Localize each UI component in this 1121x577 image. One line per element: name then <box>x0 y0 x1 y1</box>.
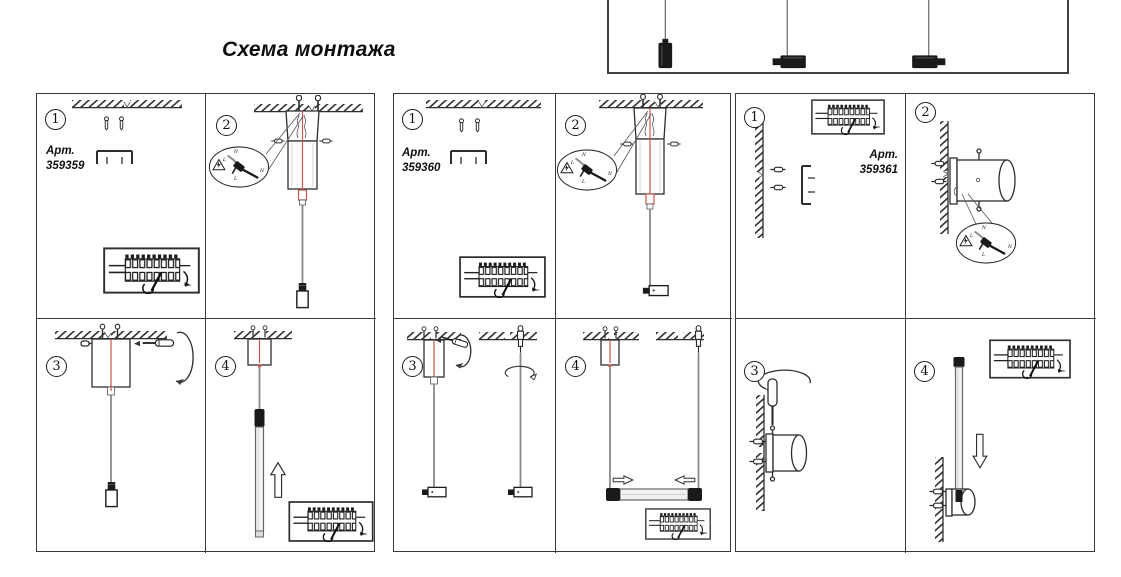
pendant-spot-right-nub <box>912 0 945 68</box>
panel3-step4-cell: 4 макс. <box>906 319 1096 553</box>
canopy <box>601 340 619 368</box>
step-number-badge: 4 <box>914 361 935 382</box>
spot-lamp <box>422 487 446 496</box>
right-arrow-icon <box>613 476 633 484</box>
cable-gripper <box>518 326 524 353</box>
small-screw-bottom <box>771 472 775 481</box>
step-number-badge: 1 <box>45 109 66 130</box>
panel2-step3-cell: 3 <box>394 319 556 553</box>
ceiling-hatch <box>72 100 182 108</box>
wall-fixture <box>946 489 975 516</box>
ceiling-hatch-right <box>479 332 537 340</box>
panel2-step1-cell: 1 Арт. 359360 <box>394 94 556 319</box>
panel3-step1-cell: 1 Арт. 359361 <box>736 94 906 319</box>
step-number-badge: 2 <box>915 102 936 123</box>
pendant-preview-drawing <box>609 0 1067 72</box>
panel3-step3-cell: 3 <box>736 319 906 553</box>
article-number: Арт. 359361 <box>828 148 898 178</box>
step-number-badge: 1 <box>744 107 765 128</box>
rotation-arrow <box>758 370 810 394</box>
lamp-socket <box>297 283 308 308</box>
pendant-spot-left-nub <box>773 0 806 68</box>
step-number-badge: 2 <box>565 115 586 136</box>
wall-hatch <box>756 395 764 511</box>
wall-fixture <box>950 158 1015 204</box>
spot-lamp <box>508 487 532 496</box>
lamp-socket <box>106 482 117 507</box>
step-number-badge: 3 <box>402 356 423 377</box>
svg-text:макс.: макс. <box>1058 369 1066 373</box>
step-number-badge: 3 <box>744 361 765 382</box>
panel3-step2-cell: 2 <box>906 94 1096 319</box>
svg-text:L: L <box>222 157 226 163</box>
dowel-screw-icon <box>770 185 785 189</box>
svg-text:макс.: макс. <box>873 125 881 129</box>
svg-text:L: L <box>969 233 973 239</box>
ceiling-hatch <box>426 100 541 108</box>
svg-text:макс.: макс. <box>184 283 192 287</box>
panel1-step3-cell: 3 <box>37 319 206 553</box>
ceiling-hatch <box>55 331 167 339</box>
dowel-screw-icon <box>459 119 463 132</box>
article-number: Арт. 359360 <box>402 146 440 176</box>
side-screw-left <box>81 341 92 346</box>
small-screw-top <box>977 149 981 160</box>
ceiling-hatch <box>234 331 292 339</box>
canopy <box>248 339 271 368</box>
dowel-screw-icon <box>104 117 108 130</box>
step-number-badge: 4 <box>215 356 236 377</box>
panel-359360: 1 Арт. 359360 <box>393 93 731 552</box>
svg-text:L: L <box>233 176 237 182</box>
ceiling-hatch-left <box>407 332 461 340</box>
step-number-badge: 4 <box>565 356 586 377</box>
panel1-step2-cell: 2 <box>206 94 376 319</box>
terminal-block-inset: макс. <box>990 340 1070 378</box>
left-arrow-icon <box>675 476 695 484</box>
screwdriver-vertical <box>768 379 777 425</box>
tube-lamp-vertical <box>954 357 965 501</box>
dowel-screw-icon <box>770 167 785 171</box>
product-preview-box <box>607 0 1069 74</box>
article-number: Арт. 359359 <box>46 144 84 174</box>
up-arrow-icon <box>271 463 285 498</box>
tube-lamp-horizontal <box>606 488 702 501</box>
pendant-lamp-vertical <box>658 0 672 68</box>
svg-text:макс.: макс. <box>360 532 368 536</box>
down-arrow-icon <box>973 434 987 467</box>
step-number-badge: 1 <box>402 109 423 130</box>
page-title: Схема монтажа <box>222 38 396 62</box>
svg-text:L: L <box>581 179 585 185</box>
canopy <box>92 339 130 387</box>
screwdriver-with-rotation <box>134 332 193 385</box>
panel1-step4-cell: 4 <box>206 319 376 553</box>
cable-gripper <box>696 326 702 353</box>
mounting-bracket <box>451 151 486 164</box>
terminal-block-inset: макс. <box>460 257 545 297</box>
terminal-block-inset: макс. <box>289 502 372 542</box>
cable-fitting <box>108 387 115 395</box>
terminal-block-inset: макс. <box>812 100 884 134</box>
wiring-detail-balloon: N L N L <box>956 194 1015 263</box>
svg-text:L: L <box>981 252 985 258</box>
tube-lamp-vertical <box>255 409 265 537</box>
ceiling-hatch-left <box>583 332 639 340</box>
cable-fitting <box>299 190 307 205</box>
panel1-step1-cell: 1 Арт. 359359 <box>37 94 206 319</box>
dowel-screw-icon <box>475 119 479 132</box>
wall-hatch <box>755 116 763 238</box>
dowel-screw-icon <box>119 117 123 130</box>
svg-text:макс.: макс. <box>532 288 540 292</box>
ceiling-hatch <box>599 100 703 108</box>
svg-text:L: L <box>570 160 574 166</box>
cable-fitting <box>646 194 654 209</box>
svg-text:макс.: макс. <box>700 531 708 535</box>
cable-fitting <box>431 377 438 384</box>
wall-hatch <box>940 121 948 234</box>
step-number-badge: 2 <box>216 115 237 136</box>
spot-lamp <box>643 286 668 296</box>
mounting-scheme-page: Схема монтажа <box>0 0 1121 577</box>
wall-fixture <box>766 434 807 472</box>
mounting-bracket <box>97 151 132 164</box>
terminal-block-inset: макс. <box>104 248 199 293</box>
mounting-bracket <box>802 166 815 204</box>
panel2-step2-cell: 2 <box>556 94 732 319</box>
panel-359359: 1 Арт. 359359 <box>36 93 375 552</box>
panel-359361: 1 Арт. 359361 <box>735 93 1095 552</box>
canopy <box>424 340 444 377</box>
step-number-badge: 3 <box>46 356 67 377</box>
wall-hatch <box>935 457 943 542</box>
panel2-step4-cell: 4 <box>556 319 732 553</box>
terminal-block-inset: макс. <box>646 509 710 540</box>
